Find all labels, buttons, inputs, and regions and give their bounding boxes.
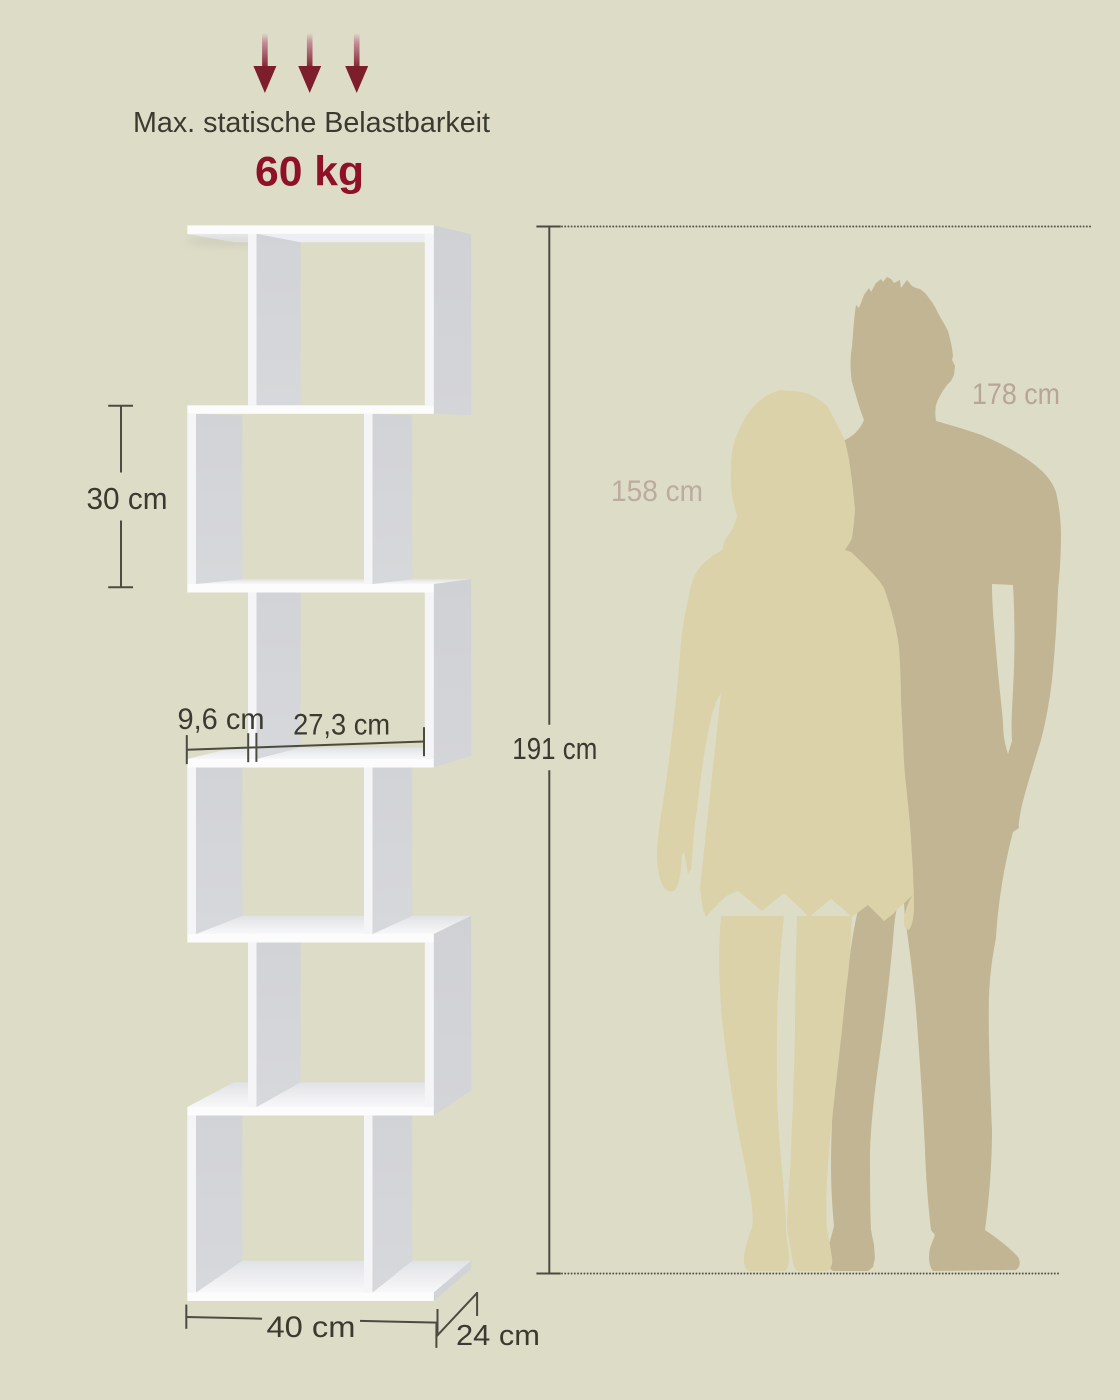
svg-text:24 cm: 24 cm bbox=[456, 1320, 540, 1352]
svg-text:9,6 cm: 9,6 cm bbox=[178, 703, 265, 736]
svg-text:178 cm: 178 cm bbox=[972, 378, 1060, 411]
svg-text:27,3 cm: 27,3 cm bbox=[293, 709, 390, 742]
svg-text:60 kg: 60 kg bbox=[255, 148, 364, 195]
svg-text:40 cm: 40 cm bbox=[267, 1311, 356, 1344]
svg-text:Max. statische Belastbarkeit: Max. statische Belastbarkeit bbox=[133, 107, 490, 139]
svg-text:30 cm: 30 cm bbox=[87, 481, 168, 516]
svg-text:158 cm: 158 cm bbox=[611, 475, 703, 508]
svg-text:191 cm: 191 cm bbox=[512, 731, 597, 766]
